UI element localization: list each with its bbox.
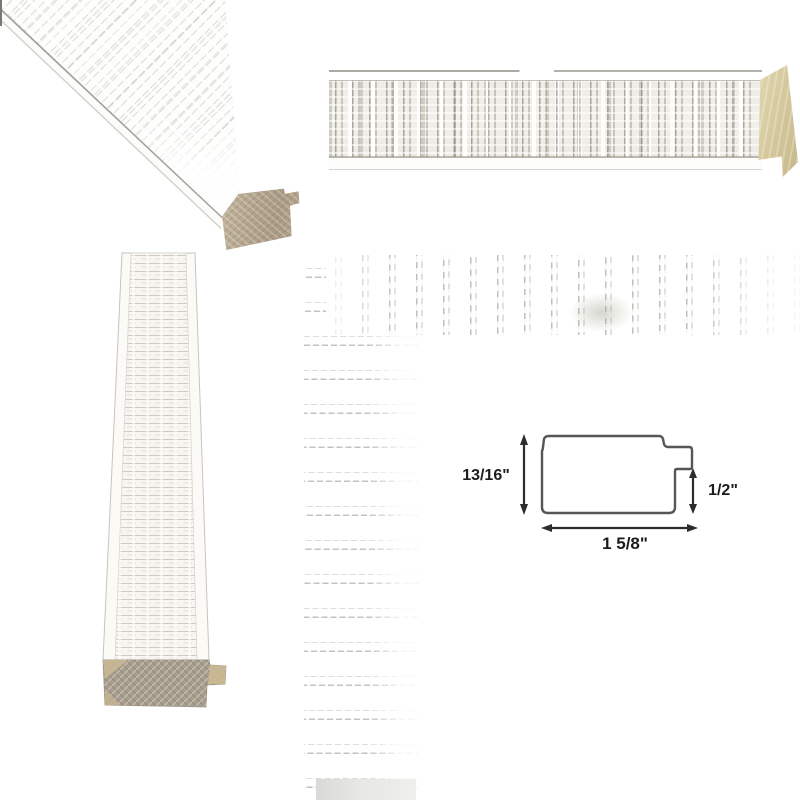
frame-corner-stile-end (316, 779, 416, 800)
width-arrow (541, 524, 698, 532)
dimension-diagram: 13/16" 1/2" 1 5/8" (443, 420, 773, 560)
height-arrow (520, 434, 528, 515)
horizontal-strip-view (329, 70, 762, 171)
stick-wood-step (208, 665, 226, 684)
stick-wood-grain (103, 660, 226, 707)
angled-strip-face (0, 0, 302, 222)
horizontal-strip-bottom-band (329, 157, 762, 170)
vertical-stick-view (96, 246, 230, 714)
lip-height-label: 1/2" (708, 482, 738, 499)
frame-corner-horizontal-rail (326, 255, 800, 335)
horizontal-strip-top-line (329, 70, 762, 72)
horizontal-strip-raw-wood-end (756, 65, 798, 178)
moulding-profile-outline (542, 436, 692, 513)
width-label: 1 5/8" (602, 534, 648, 553)
image-corner-mark (0, 0, 2, 26)
product-image: 13/16" 1/2" 1 5/8" (0, 0, 800, 800)
height-label: 13/16" (462, 467, 510, 484)
horizontal-strip-texture (329, 80, 762, 157)
lip-height-arrow (689, 468, 697, 514)
frame-corner-vertical-stile (304, 255, 418, 800)
